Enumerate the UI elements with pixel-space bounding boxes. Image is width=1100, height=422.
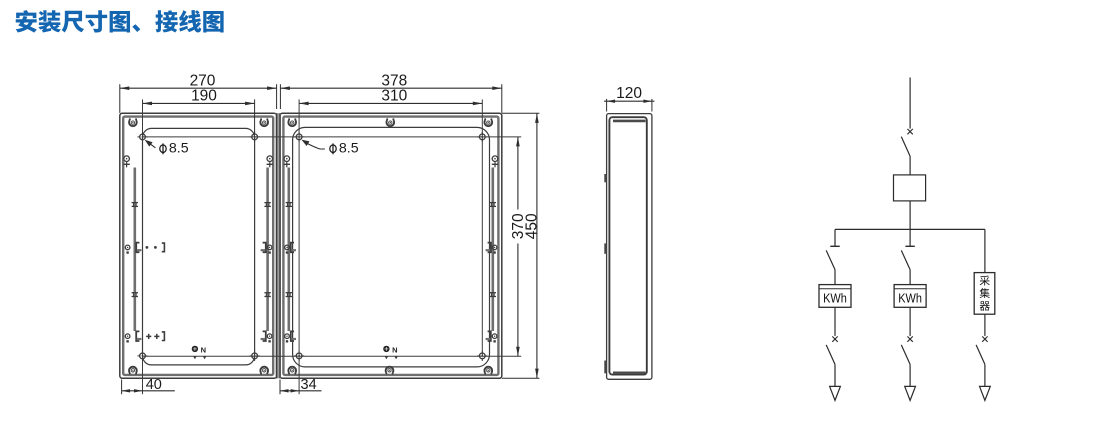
svg-text:310: 310	[381, 88, 407, 105]
svg-text:8.5: 8.5	[339, 141, 359, 157]
svg-text:120: 120	[616, 85, 642, 102]
svg-text:190: 190	[191, 88, 217, 105]
svg-text:34: 34	[301, 377, 317, 393]
svg-text:KWh: KWh	[898, 290, 922, 305]
svg-text:N: N	[392, 345, 397, 354]
svg-text:40: 40	[146, 377, 162, 393]
svg-text:N: N	[201, 345, 206, 354]
svg-text:KWh: KWh	[823, 290, 847, 305]
svg-text:8.5: 8.5	[169, 141, 189, 157]
svg-text:370: 370	[510, 213, 527, 239]
